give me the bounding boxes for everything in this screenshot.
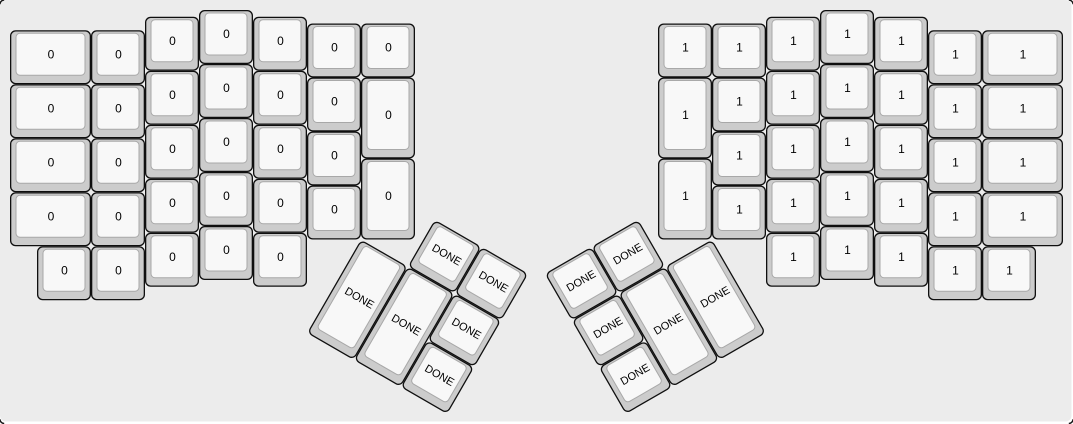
svg-text:0: 0	[169, 250, 176, 264]
svg-text:1: 1	[682, 41, 689, 55]
svg-text:0: 0	[385, 108, 392, 122]
svg-text:0: 0	[48, 155, 55, 169]
svg-text:0: 0	[277, 250, 284, 264]
svg-text:1: 1	[790, 34, 797, 48]
svg-text:0: 0	[331, 149, 338, 163]
svg-text:0: 0	[48, 209, 55, 223]
svg-text:0: 0	[169, 88, 176, 102]
svg-text:0: 0	[115, 155, 122, 169]
svg-text:1: 1	[790, 196, 797, 210]
svg-text:0: 0	[331, 41, 338, 55]
svg-text:1: 1	[790, 250, 797, 264]
svg-text:0: 0	[223, 81, 230, 95]
svg-text:0: 0	[331, 95, 338, 109]
svg-text:0: 0	[277, 34, 284, 48]
svg-text:0: 0	[223, 135, 230, 149]
svg-text:1: 1	[898, 88, 905, 102]
svg-text:1: 1	[844, 135, 851, 149]
svg-text:1: 1	[898, 196, 905, 210]
svg-text:0: 0	[277, 142, 284, 156]
svg-text:1: 1	[1020, 101, 1027, 115]
svg-text:1: 1	[682, 189, 689, 203]
svg-text:1: 1	[844, 189, 851, 203]
svg-text:1: 1	[844, 81, 851, 95]
svg-text:1: 1	[790, 142, 797, 156]
svg-text:1: 1	[844, 243, 851, 257]
svg-text:1: 1	[1020, 155, 1027, 169]
svg-text:0: 0	[169, 196, 176, 210]
svg-text:1: 1	[1020, 47, 1027, 61]
svg-text:0: 0	[223, 189, 230, 203]
svg-text:0: 0	[115, 101, 122, 115]
svg-text:0: 0	[331, 203, 338, 217]
svg-text:0: 0	[385, 41, 392, 55]
svg-text:0: 0	[277, 88, 284, 102]
svg-text:1: 1	[898, 34, 905, 48]
svg-text:1: 1	[1020, 209, 1027, 223]
svg-text:1: 1	[790, 88, 797, 102]
svg-text:0: 0	[223, 243, 230, 257]
svg-text:0: 0	[48, 101, 55, 115]
svg-text:1: 1	[952, 209, 959, 223]
svg-text:1: 1	[898, 142, 905, 156]
svg-text:1: 1	[844, 27, 851, 41]
svg-text:0: 0	[61, 263, 68, 277]
svg-text:0: 0	[115, 263, 122, 277]
svg-text:1: 1	[736, 149, 743, 163]
svg-text:1: 1	[682, 108, 689, 122]
svg-text:0: 0	[223, 27, 230, 41]
svg-text:0: 0	[115, 47, 122, 61]
svg-text:0: 0	[48, 47, 55, 61]
svg-text:1: 1	[952, 101, 959, 115]
svg-text:1: 1	[736, 95, 743, 109]
svg-text:1: 1	[898, 250, 905, 264]
svg-text:1: 1	[952, 155, 959, 169]
svg-text:1: 1	[952, 47, 959, 61]
svg-text:0: 0	[385, 189, 392, 203]
svg-text:0: 0	[169, 34, 176, 48]
svg-text:1: 1	[1006, 263, 1013, 277]
svg-text:1: 1	[736, 41, 743, 55]
svg-text:0: 0	[277, 196, 284, 210]
svg-text:0: 0	[169, 142, 176, 156]
svg-text:0: 0	[115, 209, 122, 223]
svg-text:1: 1	[952, 263, 959, 277]
svg-text:1: 1	[736, 203, 743, 217]
